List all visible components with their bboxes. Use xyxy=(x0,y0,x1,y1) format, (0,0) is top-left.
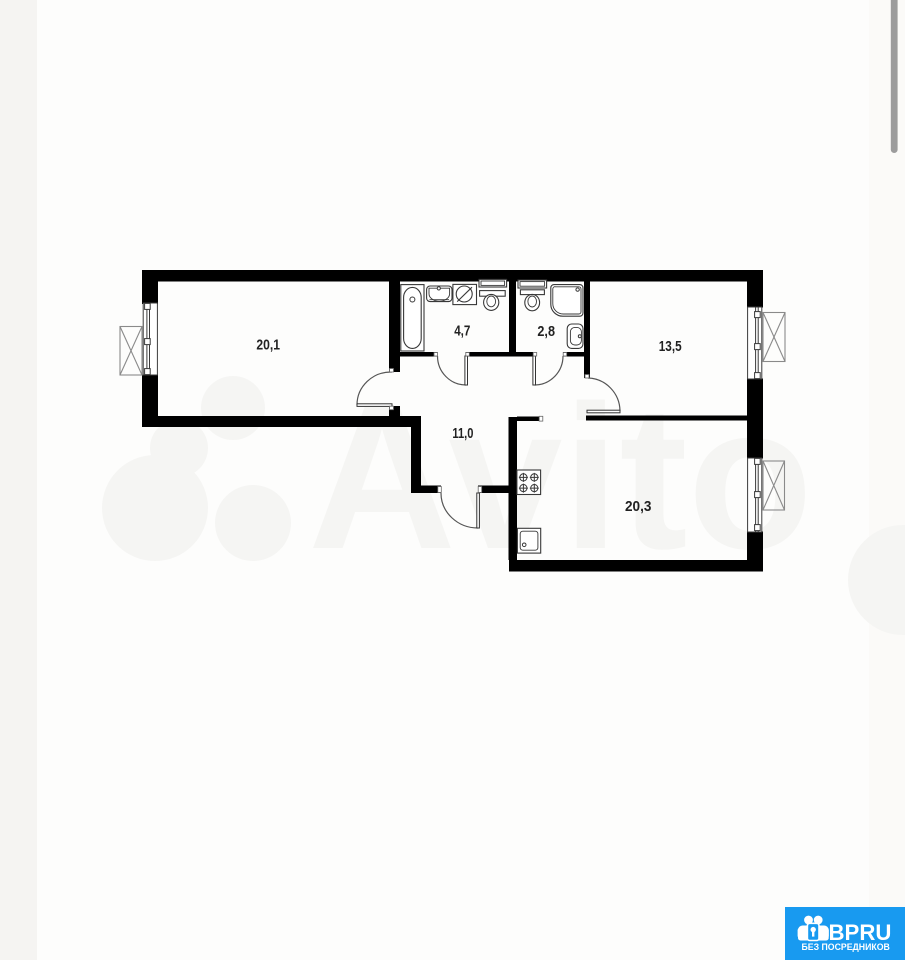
svg-text:20,1: 20,1 xyxy=(256,337,280,354)
svg-text:Avito: Avito xyxy=(308,363,813,592)
svg-text:2,8: 2,8 xyxy=(537,323,555,340)
svg-text:13,5: 13,5 xyxy=(659,338,682,355)
svg-text:БЕЗ ПОСРЕДНИКОВ: БЕЗ ПОСРЕДНИКОВ xyxy=(801,942,889,953)
svg-text:20,3: 20,3 xyxy=(625,498,651,515)
svg-text:11,0: 11,0 xyxy=(452,425,473,442)
svg-text:4,7: 4,7 xyxy=(454,322,470,339)
